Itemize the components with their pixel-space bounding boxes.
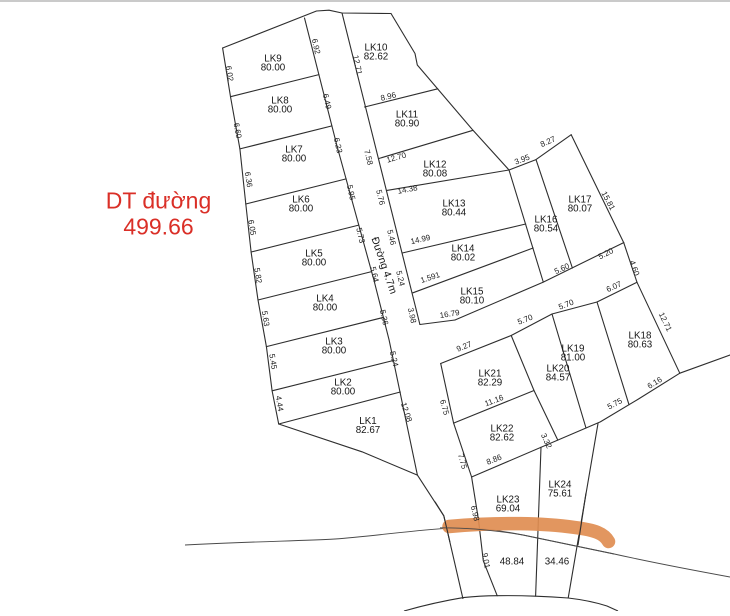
svg-text:69.04: 69.04	[496, 504, 521, 515]
svg-text:80.00: 80.00	[313, 303, 338, 314]
svg-text:80.00: 80.00	[331, 387, 356, 398]
svg-text:82.62: 82.62	[490, 433, 515, 444]
svg-text:48.84: 48.84	[500, 557, 525, 568]
svg-text:80.90: 80.90	[395, 119, 420, 130]
svg-text:80.00: 80.00	[322, 346, 347, 357]
svg-text:34.46: 34.46	[545, 557, 570, 568]
svg-text:82.62: 82.62	[364, 52, 389, 63]
svg-text:80.54: 80.54	[534, 224, 559, 235]
svg-text:80.02: 80.02	[451, 253, 476, 264]
svg-text:80.00: 80.00	[261, 63, 286, 74]
svg-text:84.57: 84.57	[546, 373, 571, 384]
svg-text:80.10: 80.10	[460, 296, 485, 307]
svg-text:80.00: 80.00	[282, 154, 307, 165]
svg-text:81.00: 81.00	[561, 353, 586, 364]
svg-text:80.00: 80.00	[302, 258, 327, 269]
svg-text:80.63: 80.63	[628, 340, 653, 351]
svg-text:80.07: 80.07	[568, 204, 593, 215]
svg-text:80.00: 80.00	[289, 204, 314, 215]
svg-text:82.29: 82.29	[478, 378, 503, 389]
svg-text:80.08: 80.08	[423, 169, 448, 180]
svg-text:75.61: 75.61	[548, 489, 573, 500]
svg-text:82.67: 82.67	[356, 425, 381, 436]
svg-text:80.00: 80.00	[268, 105, 293, 116]
svg-text:80.44: 80.44	[442, 208, 467, 219]
svg-text:499.66: 499.66	[123, 214, 193, 240]
svg-text:DT đường: DT đường	[106, 188, 212, 214]
